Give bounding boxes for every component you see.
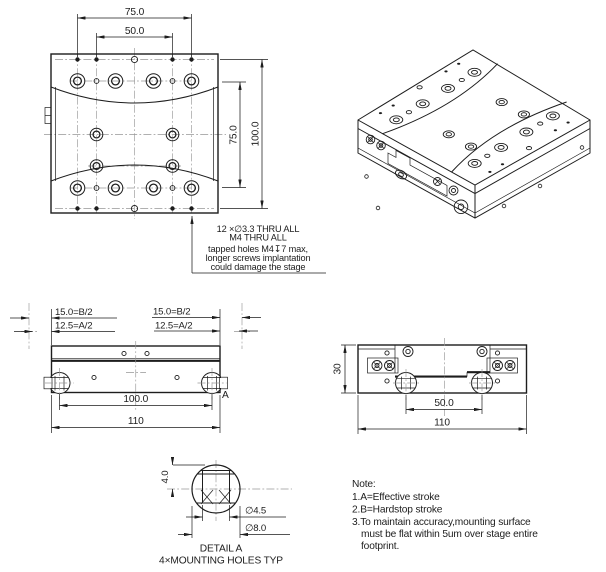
isometric-view bbox=[358, 50, 590, 218]
dim-side-hole-spacing: 50.0 bbox=[434, 398, 454, 409]
dim-effective-left: 12.5=A/2 bbox=[55, 321, 92, 332]
dim-detail-hole-dia: ∅4.5 bbox=[245, 506, 266, 517]
dim-front-hole-spacing: 100.0 bbox=[123, 394, 148, 405]
dim-hardstop-left: 15.0=B/2 bbox=[55, 307, 92, 318]
dim-top-width-inner: 50.0 bbox=[125, 26, 145, 37]
dim-top-width-outer: 75.0 bbox=[125, 7, 145, 18]
note-line-5: footprint. bbox=[361, 541, 399, 552]
notes-title: Note: bbox=[352, 479, 376, 490]
callout-line-5: could damage the stage bbox=[211, 262, 306, 272]
drawing-canvas: 75.0 50.0 75.0 100.0 12 ×∅3.3 THRU ALL M… bbox=[0, 0, 606, 572]
hole-callout: 12 ×∅3.3 THRU ALL M4 THRU ALL tapped hol… bbox=[192, 216, 326, 273]
note-line-1: 1.A=Effective stroke bbox=[352, 492, 440, 503]
dim-front-overall-width: 110 bbox=[128, 416, 144, 427]
side-view: 30 50.0 110 bbox=[333, 338, 527, 434]
top-view: 75.0 50.0 75.0 100.0 12 ×∅3.3 THRU ALL M… bbox=[44, 7, 326, 273]
dim-top-height-inner: 75.0 bbox=[229, 125, 240, 145]
dim-hardstop-right: 15.0=B/2 bbox=[153, 307, 190, 318]
dim-side-overall-width: 110 bbox=[434, 418, 450, 429]
note-line-4: must be flat within 5um over stage entir… bbox=[361, 529, 538, 540]
technical-drawing-page: 75.0 50.0 75.0 100.0 12 ×∅3.3 THRU ALL M… bbox=[0, 0, 606, 572]
detail-a-title: DETAIL A bbox=[200, 544, 243, 555]
note-line-2: 2.B=Hardstop stroke bbox=[352, 505, 443, 516]
note-line-3: 3.To maintain accuracy,mounting surface bbox=[352, 517, 531, 528]
dim-detail-counterbore-dia: ∅8.0 bbox=[245, 523, 266, 534]
front-view: 15.0=B/2 12.5=A/2 15.0=B/2 12.5=A/2 A 10… bbox=[10, 303, 261, 433]
dim-effective-right: 12.5=A/2 bbox=[155, 321, 192, 332]
dim-side-height: 30 bbox=[333, 363, 344, 375]
detail-a-subtitle: 4×MOUNTING HOLES TYP bbox=[159, 556, 283, 567]
callout-line-2: M4 THRU ALL bbox=[229, 233, 286, 243]
notes-block: Note: 1.A=Effective stroke 2.B=Hardstop … bbox=[352, 479, 538, 552]
detail-a-marker: A bbox=[222, 390, 229, 401]
detail-a-view: 4.0 ∅4.5 ∅8.0 DETAIL A 4×MOUNTING HOLES … bbox=[159, 458, 292, 567]
dim-top-height-outer: 100.0 bbox=[251, 121, 262, 146]
dim-detail-depth: 4.0 bbox=[160, 471, 171, 484]
